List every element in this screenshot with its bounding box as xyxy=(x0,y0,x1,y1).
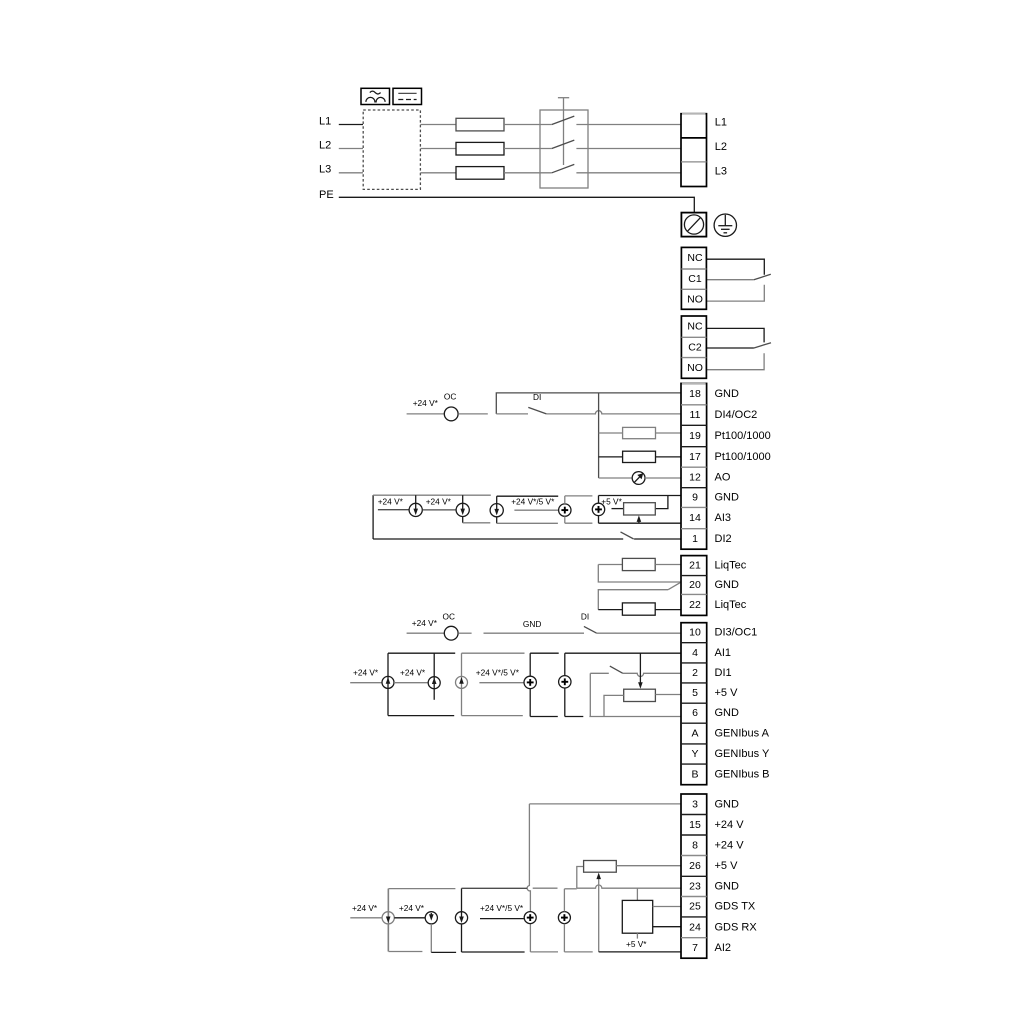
svg-text:1: 1 xyxy=(692,533,698,545)
svg-text:GND: GND xyxy=(715,707,740,719)
svg-text:GND: GND xyxy=(715,880,740,892)
svg-text:21: 21 xyxy=(689,560,701,572)
svg-text:L1: L1 xyxy=(319,115,331,127)
svg-text:+24 V*: +24 V* xyxy=(352,903,378,913)
svg-text:+24 V*: +24 V* xyxy=(399,903,425,913)
svg-text:NO: NO xyxy=(687,293,703,305)
svg-text:L1: L1 xyxy=(715,117,727,129)
svg-text:GND: GND xyxy=(523,619,541,629)
svg-text:L2: L2 xyxy=(319,140,331,152)
svg-text:Pt100/1000: Pt100/1000 xyxy=(715,451,771,463)
svg-text:AI3: AI3 xyxy=(715,512,732,524)
svg-text:GND: GND xyxy=(715,798,740,810)
svg-text:+24 V: +24 V xyxy=(715,819,745,831)
svg-text:+24 V*/5 V*: +24 V*/5 V* xyxy=(511,496,555,506)
svg-text:20: 20 xyxy=(689,579,701,591)
svg-text:+24 V*: +24 V* xyxy=(353,667,379,677)
svg-text:NO: NO xyxy=(687,362,703,374)
svg-text:+5 V: +5 V xyxy=(715,860,739,872)
svg-text:12: 12 xyxy=(689,471,701,483)
svg-text:23: 23 xyxy=(689,880,701,892)
svg-text:GENIbus Y: GENIbus Y xyxy=(715,748,770,760)
svg-text:19: 19 xyxy=(689,430,701,442)
svg-text:+24 V*: +24 V* xyxy=(378,496,404,506)
svg-text:17: 17 xyxy=(689,451,701,463)
svg-text:GDS TX: GDS TX xyxy=(715,901,756,913)
svg-text:L3: L3 xyxy=(319,164,331,176)
svg-text:15: 15 xyxy=(689,819,701,831)
svg-text:8: 8 xyxy=(692,839,698,851)
svg-text:+24 V*/5 V*: +24 V*/5 V* xyxy=(476,667,520,677)
svg-text:4: 4 xyxy=(692,647,698,659)
svg-text:9: 9 xyxy=(692,492,698,504)
svg-text:AI2: AI2 xyxy=(715,942,732,954)
svg-text:3: 3 xyxy=(692,798,698,810)
svg-text:5: 5 xyxy=(692,687,698,699)
svg-text:AO: AO xyxy=(715,471,731,483)
svg-text:GND: GND xyxy=(715,388,740,400)
svg-text:26: 26 xyxy=(689,860,701,872)
svg-text:C1: C1 xyxy=(688,273,702,285)
svg-text:+24 V: +24 V xyxy=(715,839,745,851)
svg-text:6: 6 xyxy=(692,707,698,719)
svg-text:C2: C2 xyxy=(688,341,702,353)
svg-text:NC: NC xyxy=(687,321,703,333)
svg-text:+24 V*: +24 V* xyxy=(400,667,426,677)
svg-text:+24 V*/5 V*: +24 V*/5 V* xyxy=(480,903,524,913)
svg-text:7: 7 xyxy=(692,942,698,954)
svg-text:DI2: DI2 xyxy=(715,533,732,545)
svg-text:LiqTec: LiqTec xyxy=(715,560,747,572)
svg-text:+5 V: +5 V xyxy=(715,687,739,699)
svg-text:DI4/OC2: DI4/OC2 xyxy=(715,409,758,421)
svg-text:A: A xyxy=(691,728,698,740)
svg-text:24: 24 xyxy=(689,921,701,933)
svg-text:L3: L3 xyxy=(715,166,727,178)
svg-text:+24 V*: +24 V* xyxy=(413,398,439,408)
svg-text:+24 V*: +24 V* xyxy=(412,618,438,628)
svg-text:18: 18 xyxy=(689,388,701,400)
svg-text:2: 2 xyxy=(692,667,698,679)
svg-text:+24 V*: +24 V* xyxy=(426,496,452,506)
svg-text:GENIbus A: GENIbus A xyxy=(715,728,770,740)
svg-text:Pt100/1000: Pt100/1000 xyxy=(715,430,771,442)
svg-text:+5 V*: +5 V* xyxy=(601,497,622,507)
svg-text:10: 10 xyxy=(689,627,701,639)
svg-text:Y: Y xyxy=(691,748,698,760)
svg-text:PE: PE xyxy=(319,189,334,201)
svg-text:14: 14 xyxy=(689,512,701,524)
svg-text:OC: OC xyxy=(443,612,455,622)
svg-text:GND: GND xyxy=(715,579,740,591)
svg-text:L2: L2 xyxy=(715,141,727,153)
svg-text:GENIbus B: GENIbus B xyxy=(715,768,770,780)
svg-text:DI1: DI1 xyxy=(715,667,732,679)
svg-text:GDS RX: GDS RX xyxy=(715,921,758,933)
svg-text:AI1: AI1 xyxy=(715,647,732,659)
svg-text:GND: GND xyxy=(715,492,740,504)
svg-text:11: 11 xyxy=(690,409,701,421)
svg-text:+5 V*: +5 V* xyxy=(626,939,647,949)
svg-text:NC: NC xyxy=(687,252,703,264)
svg-text:OC: OC xyxy=(444,392,456,402)
svg-text:LiqTec: LiqTec xyxy=(715,599,747,611)
svg-text:22: 22 xyxy=(689,599,701,611)
svg-text:DI3/OC1: DI3/OC1 xyxy=(715,627,758,639)
svg-text:25: 25 xyxy=(689,901,701,913)
svg-text:B: B xyxy=(691,768,698,780)
svg-text:DI: DI xyxy=(581,612,589,622)
svg-text:DI: DI xyxy=(533,392,541,402)
